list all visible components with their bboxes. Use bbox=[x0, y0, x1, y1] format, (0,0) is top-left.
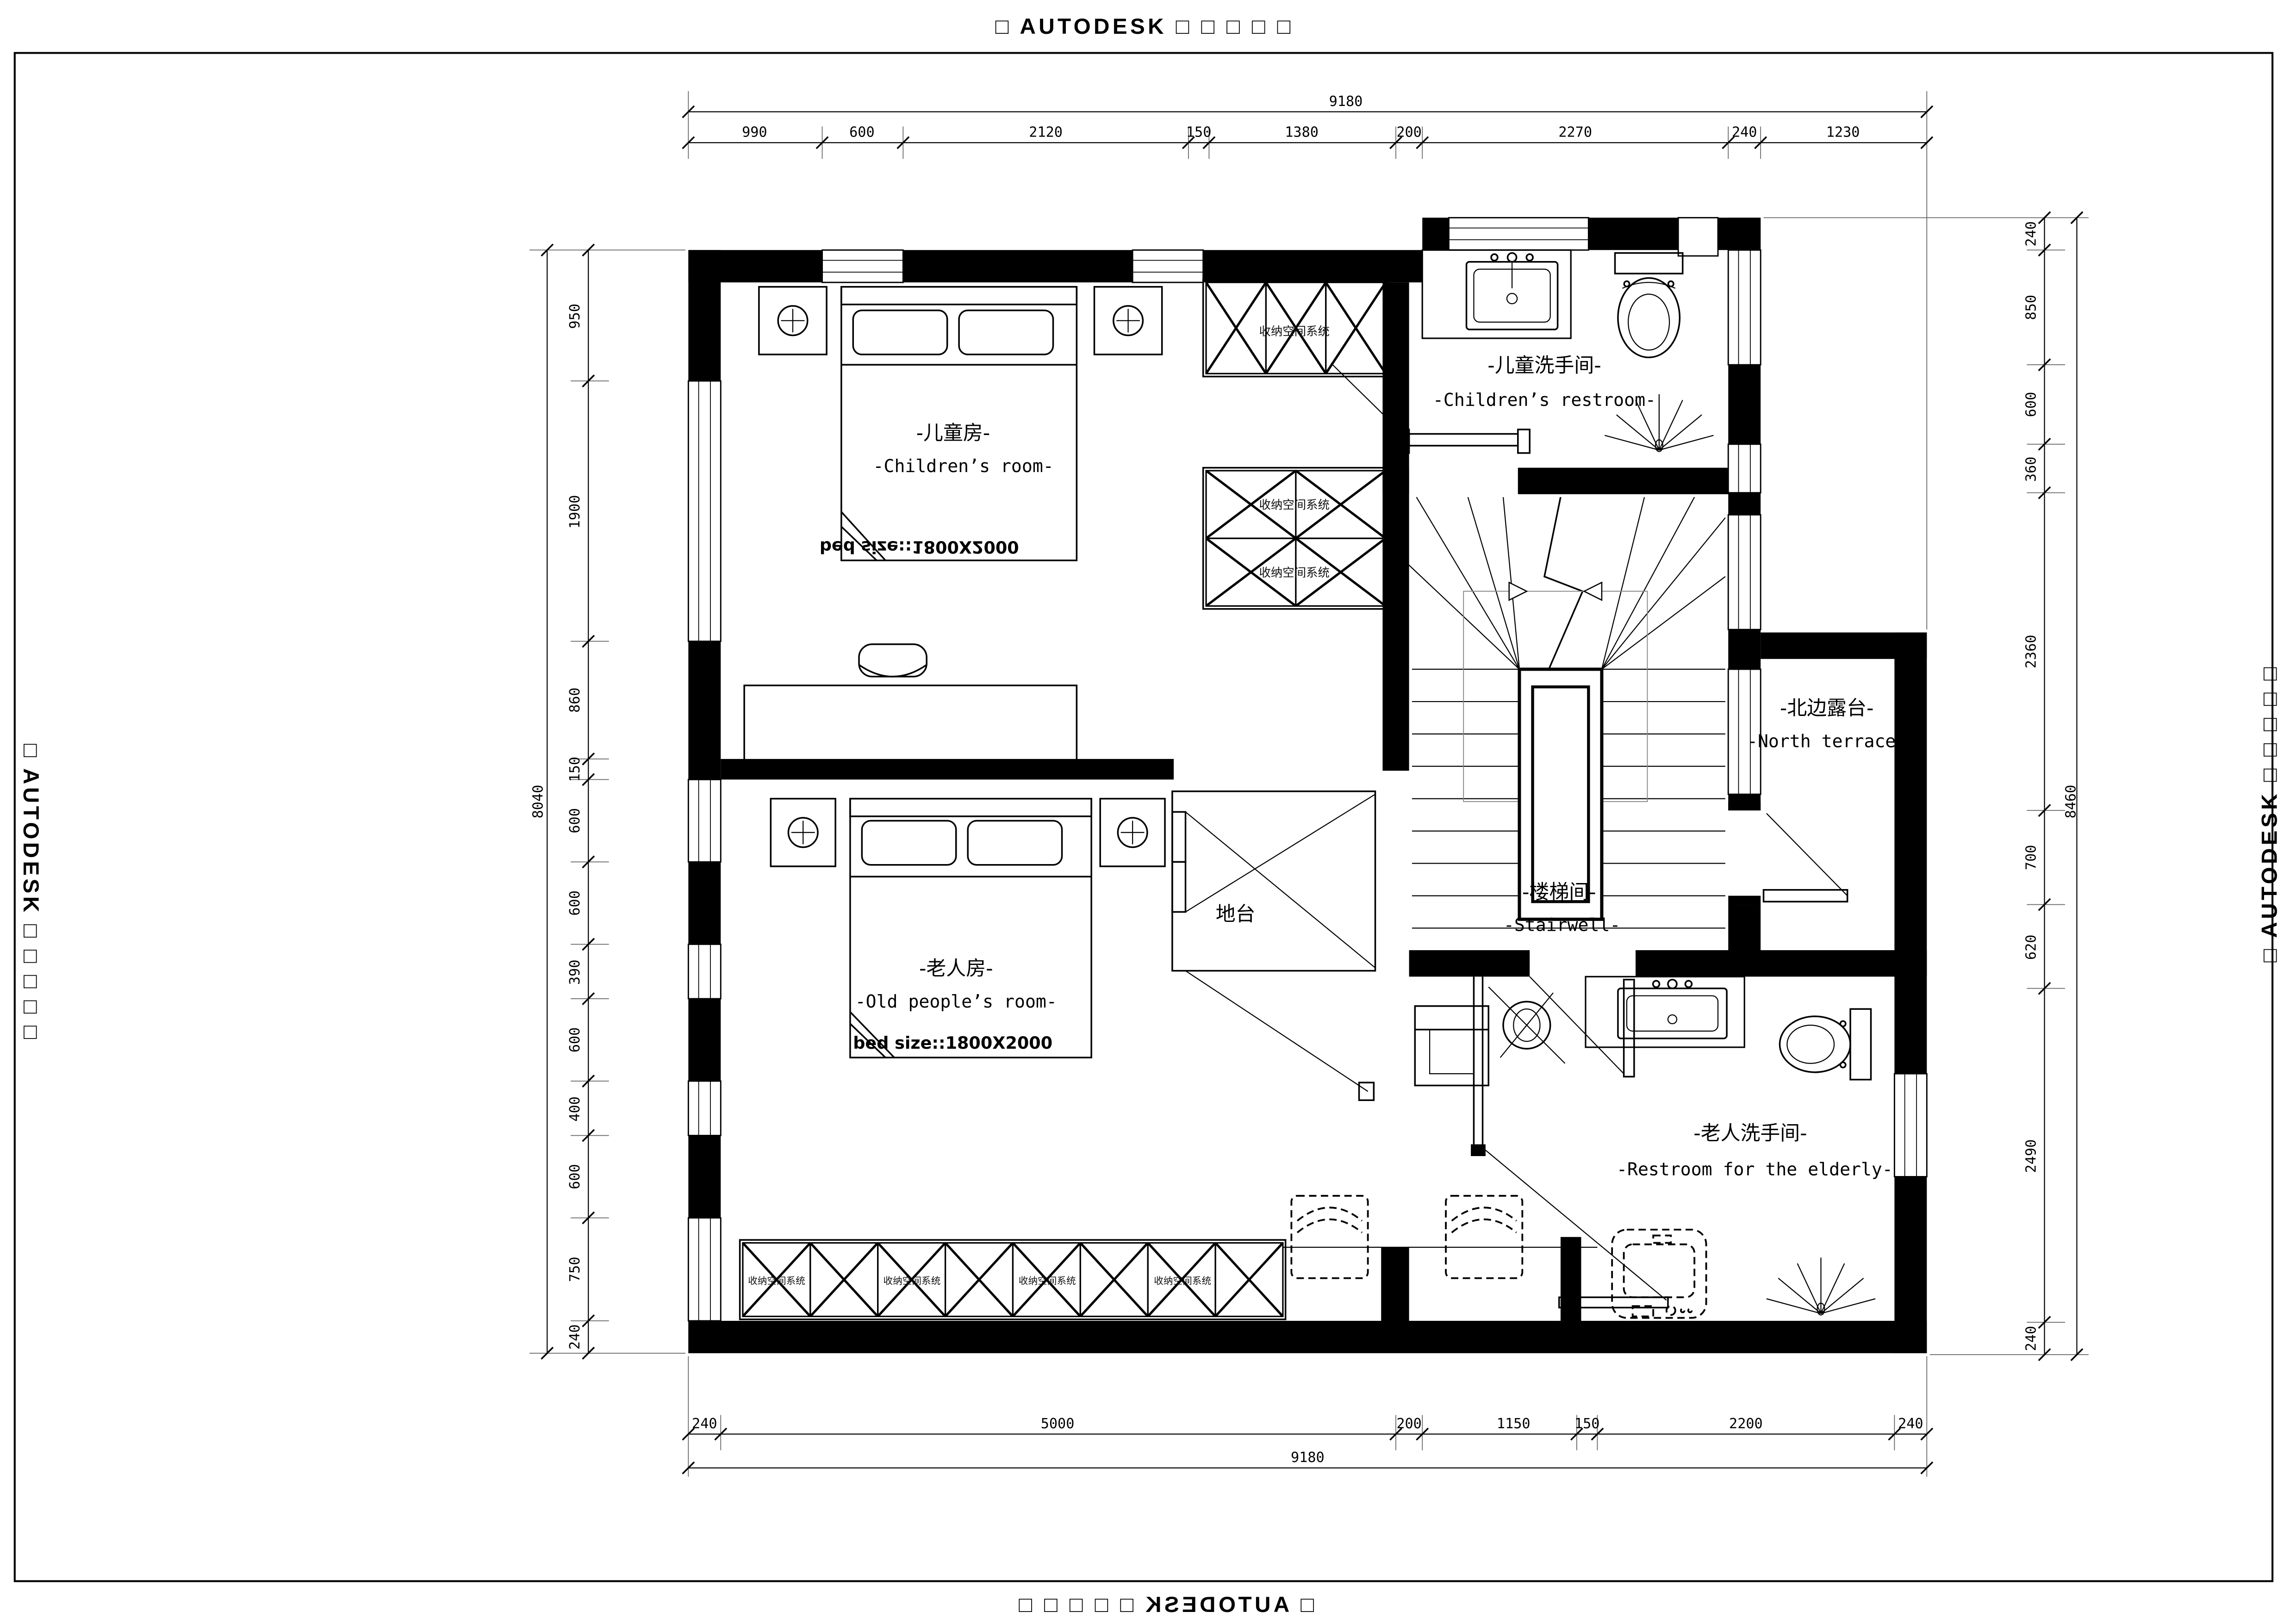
desk bbox=[744, 685, 1076, 765]
svg-text:600: 600 bbox=[567, 890, 583, 916]
svg-text:2360: 2360 bbox=[2023, 635, 2039, 669]
svg-text:200: 200 bbox=[1396, 124, 1422, 141]
window-left-4 bbox=[688, 1081, 721, 1136]
room-label-en: -Old people’s room- bbox=[855, 991, 1057, 1012]
window-left-3 bbox=[688, 944, 721, 999]
toilet bbox=[1615, 253, 1683, 358]
window-top-1 bbox=[822, 250, 903, 282]
door-swing bbox=[1186, 971, 1368, 1092]
vanity bbox=[1586, 977, 1744, 1047]
svg-text:750: 750 bbox=[567, 1257, 583, 1282]
svg-text:700: 700 bbox=[2023, 845, 2039, 871]
watermark-left: □ AUTODESK □ □ □ □ □ bbox=[19, 744, 43, 1042]
svg-text:200: 200 bbox=[1396, 1416, 1422, 1432]
svg-text:860: 860 bbox=[567, 688, 583, 713]
terrace-door bbox=[1728, 802, 1847, 904]
vanity bbox=[1422, 250, 1571, 338]
svg-text:850: 850 bbox=[2023, 295, 2039, 320]
watermark-top: □ AUTODESK □ □ □ □ □ bbox=[996, 14, 1294, 39]
svg-text:990: 990 bbox=[742, 124, 767, 141]
dim-bottom: 9180 240 5000 200 1150 150 2200 240 bbox=[683, 1356, 1933, 1477]
window-top-2 bbox=[1132, 250, 1203, 282]
room-label-cn: -北边露台- bbox=[1780, 697, 1874, 720]
window-left-2 bbox=[688, 779, 721, 862]
window-right-2 bbox=[1728, 444, 1761, 493]
watermark-bottom: □ AUTODESK □ □ □ □ □ bbox=[1016, 1593, 1314, 1617]
platform-label: 地台 bbox=[1216, 902, 1256, 926]
wardrobe-bottom: 收纳空间系统 收纳空间系统 收纳空间系统 收纳空间系统 bbox=[740, 1240, 1286, 1319]
dim-left: 8040 950 1900 860 150 600 600 390 600 40… bbox=[529, 244, 685, 1359]
svg-text:600: 600 bbox=[567, 808, 583, 834]
arrow-right-icon bbox=[1509, 583, 1527, 600]
ceiling-fan-icon bbox=[1488, 987, 1565, 1063]
room-label-cn: -儿童洗手间- bbox=[1487, 354, 1601, 377]
svg-text:950: 950 bbox=[567, 304, 583, 329]
chair bbox=[859, 644, 927, 677]
wardrobe-top: 收纳空间系统 bbox=[1203, 280, 1388, 377]
svg-text:600: 600 bbox=[849, 124, 875, 141]
svg-text:240: 240 bbox=[2023, 1326, 2039, 1351]
platform: 地台 bbox=[1172, 791, 1375, 1100]
room-label-cn: -楼梯间- bbox=[1522, 881, 1596, 904]
toilet bbox=[1780, 1009, 1871, 1080]
svg-text:2120: 2120 bbox=[1029, 124, 1063, 141]
svg-text:1150: 1150 bbox=[1497, 1416, 1531, 1432]
svg-text:2490: 2490 bbox=[2023, 1139, 2039, 1173]
children-room: -儿童房- -Children’s room- bed size::1800X2… bbox=[744, 287, 1162, 765]
old-people-room: -老人房- -Old people’s room- bed size::1800… bbox=[740, 799, 1286, 1319]
chair bbox=[1415, 1006, 1488, 1086]
window-restroom-top bbox=[1449, 218, 1588, 250]
room-label-en: -Children’s room- bbox=[873, 456, 1054, 476]
floorplan-page: □ AUTODESK □ □ □ □ □ □ AUTODESK □ □ □ □ … bbox=[0, 0, 2296, 1624]
svg-text:360: 360 bbox=[2023, 457, 2039, 482]
dim-total: 8460 bbox=[2063, 785, 2079, 819]
floor-plan-canvas: □ AUTODESK □ □ □ □ □ □ AUTODESK □ □ □ □ … bbox=[0, 0, 2296, 1624]
svg-text:2270: 2270 bbox=[1558, 124, 1592, 141]
svg-text:240: 240 bbox=[567, 1325, 583, 1350]
window-left-5 bbox=[688, 1218, 721, 1320]
room-label-en: -Stairwell- bbox=[1504, 915, 1621, 935]
window-right-1 bbox=[1728, 250, 1761, 365]
closet-label: 收纳空间系统 bbox=[1019, 1275, 1076, 1286]
watermark-right: □ AUTODESK □ □ □ □ □ bbox=[2258, 664, 2282, 962]
door-jamb bbox=[1359, 1083, 1374, 1100]
svg-text:600: 600 bbox=[567, 1164, 583, 1189]
nightstand-left bbox=[771, 799, 835, 866]
nightstand-right bbox=[1100, 799, 1165, 866]
closet-label: 收纳空间系统 bbox=[1259, 566, 1329, 579]
svg-text:620: 620 bbox=[2023, 934, 2039, 960]
room-label-en: -Children’s restroom- bbox=[1433, 390, 1656, 410]
dim-total: 9180 bbox=[1291, 1450, 1325, 1466]
dim-total: 8040 bbox=[530, 785, 547, 819]
nightstand-left bbox=[759, 287, 827, 355]
room-label-cn: -老人房- bbox=[919, 957, 993, 980]
svg-text:150: 150 bbox=[567, 757, 583, 782]
svg-text:5000: 5000 bbox=[1041, 1416, 1075, 1432]
svg-text:390: 390 bbox=[567, 959, 583, 985]
svg-text:400: 400 bbox=[567, 1096, 583, 1122]
wardrobe-mid: 收纳空间系统 收纳空间系统 bbox=[1203, 468, 1388, 609]
dim-total: 9180 bbox=[1329, 93, 1363, 110]
arrow-left-icon bbox=[1584, 583, 1602, 600]
svg-text:240: 240 bbox=[1732, 124, 1757, 141]
svg-text:240: 240 bbox=[692, 1416, 717, 1432]
bed-size-mirrored: bed size::1800X2000 bbox=[820, 537, 1019, 557]
room-label-cn: -儿童房- bbox=[916, 422, 990, 445]
elderly-restroom: -老人洗手间- -Restroom for the elderly- bbox=[1282, 977, 1893, 1318]
closet-label: 收纳空间系统 bbox=[1154, 1275, 1211, 1286]
shower-spray bbox=[1767, 1257, 1875, 1315]
closet-label: 收纳空间系统 bbox=[883, 1275, 940, 1286]
closet-label: 收纳空间系统 bbox=[748, 1275, 805, 1286]
svg-text:240: 240 bbox=[2023, 221, 2039, 247]
svg-text:240: 240 bbox=[1898, 1416, 1923, 1432]
bed bbox=[850, 799, 1091, 1058]
svg-text:150: 150 bbox=[1574, 1416, 1600, 1432]
washing-machine bbox=[1612, 1230, 1706, 1318]
stool-2 bbox=[1446, 1196, 1522, 1278]
shaft-box bbox=[1678, 218, 1718, 256]
bed-size-label: bed size::1800X2000 bbox=[853, 1033, 1052, 1053]
room-label-en: -Restroom for the elderly- bbox=[1617, 1159, 1893, 1179]
room-label-cn: -老人洗手间- bbox=[1693, 1122, 1807, 1145]
window-right-lower bbox=[1894, 1074, 1927, 1176]
room-label-en: -North terrace- bbox=[1747, 731, 1906, 751]
svg-text:600: 600 bbox=[2023, 392, 2039, 417]
break-line bbox=[1544, 497, 1583, 669]
svg-text:1380: 1380 bbox=[1285, 124, 1319, 141]
svg-text:2200: 2200 bbox=[1729, 1416, 1763, 1432]
closet-label: 收纳空间系统 bbox=[1259, 498, 1329, 512]
window-stair-1 bbox=[1728, 515, 1761, 629]
nightstand-right bbox=[1094, 287, 1162, 355]
svg-text:1900: 1900 bbox=[567, 495, 583, 529]
double-door bbox=[1172, 794, 1375, 968]
svg-text:600: 600 bbox=[567, 1027, 583, 1053]
stool-1 bbox=[1291, 1196, 1368, 1278]
window-left-large bbox=[688, 381, 721, 641]
closet-label: 收纳空间系统 bbox=[1259, 324, 1329, 338]
stairwell: -楼梯间- -Stairwell- bbox=[1390, 497, 1725, 935]
svg-text:150: 150 bbox=[1186, 124, 1212, 141]
svg-text:1230: 1230 bbox=[1826, 124, 1860, 141]
